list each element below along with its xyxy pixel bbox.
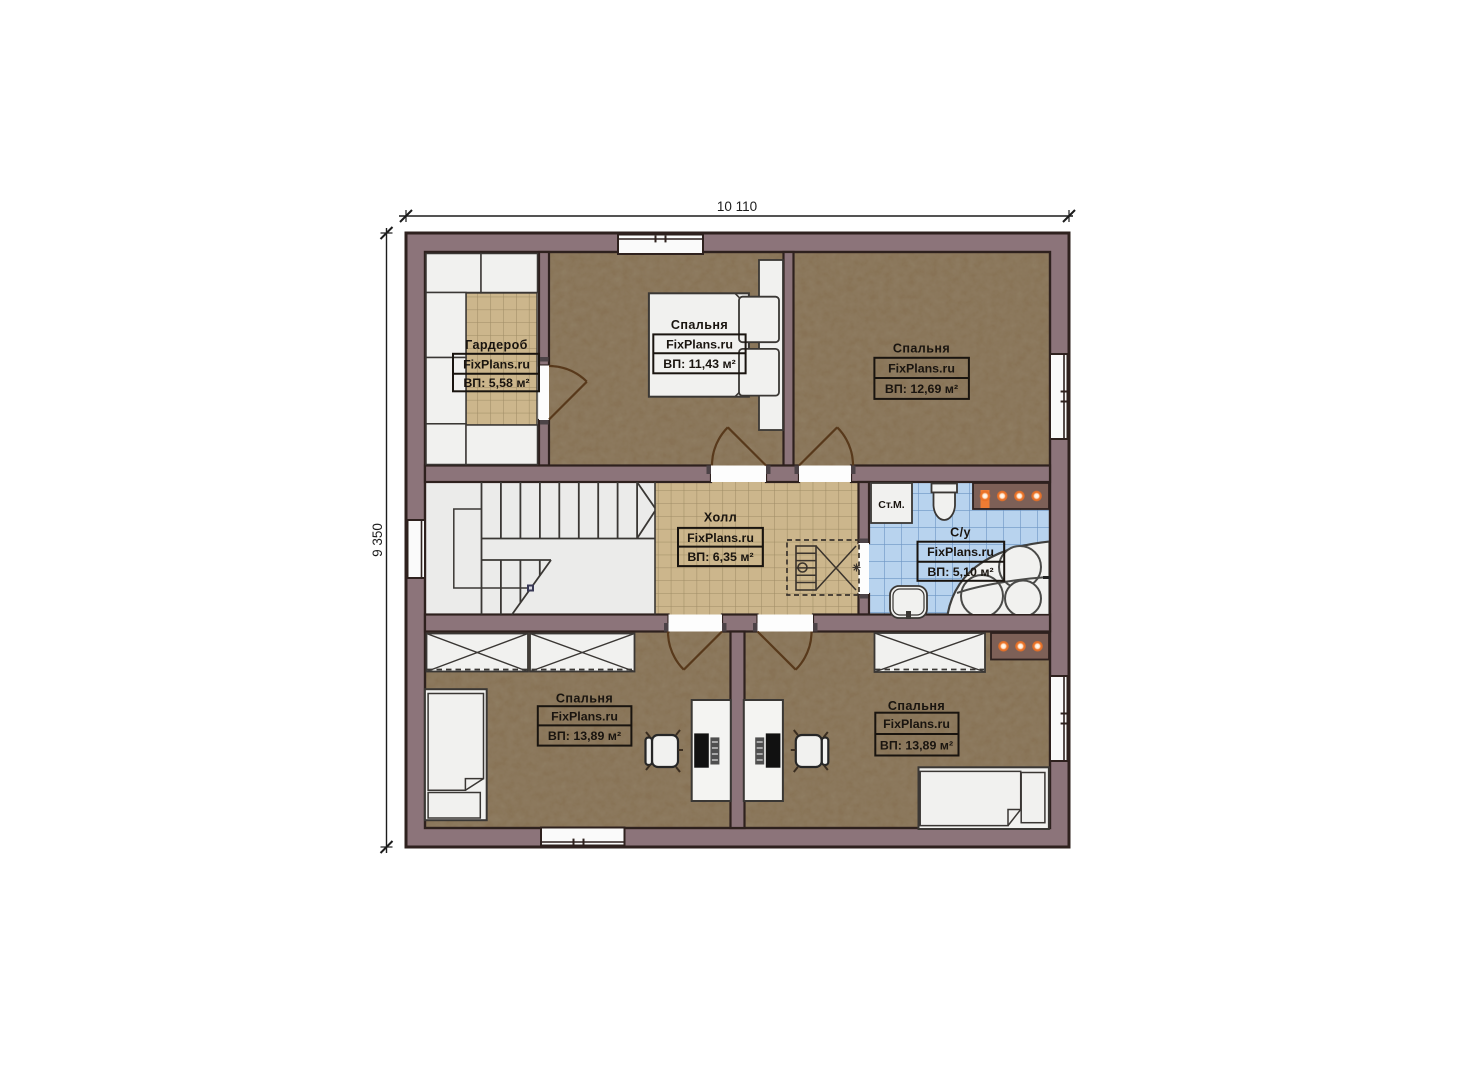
- svg-text:ВП: 6,35 м²: ВП: 6,35 м²: [687, 550, 753, 564]
- svg-text:FixPlans.ru: FixPlans.ru: [687, 531, 754, 545]
- svg-text:Спальня: Спальня: [888, 699, 945, 713]
- svg-text:ВП: 13,89 м²: ВП: 13,89 м²: [548, 729, 621, 743]
- svg-text:FixPlans.ru: FixPlans.ru: [888, 361, 955, 375]
- svg-text:ВП: 12,69 м²: ВП: 12,69 м²: [885, 382, 958, 396]
- svg-text:FixPlans.ru: FixPlans.ru: [883, 717, 950, 731]
- svg-text:FixPlans.ru: FixPlans.ru: [927, 545, 994, 559]
- svg-text:9 350: 9 350: [370, 523, 385, 557]
- svg-text:С/у: С/у: [950, 526, 971, 540]
- svg-text:Холл: Холл: [704, 511, 737, 525]
- svg-text:10 110: 10 110: [717, 199, 757, 214]
- svg-text:Ст.М.: Ст.М.: [878, 499, 904, 511]
- svg-text:ВП: 11,43 м²: ВП: 11,43 м²: [663, 357, 735, 371]
- svg-text:ВП: 5,58 м²: ВП: 5,58 м²: [463, 376, 529, 390]
- svg-text:Спальня: Спальня: [556, 692, 613, 706]
- svg-text:Спальня: Спальня: [893, 342, 950, 356]
- svg-text:ВП: 5,10 м²: ВП: 5,10 м²: [927, 565, 993, 579]
- svg-text:ВП: 13,89 м²: ВП: 13,89 м²: [880, 738, 953, 752]
- svg-text:Гардероб: Гардероб: [465, 338, 528, 352]
- svg-text:FixPlans.ru: FixPlans.ru: [666, 337, 733, 351]
- svg-text:Спальня: Спальня: [671, 318, 728, 332]
- svg-text:FixPlans.ru: FixPlans.ru: [463, 357, 530, 371]
- svg-text:FixPlans.ru: FixPlans.ru: [551, 709, 618, 723]
